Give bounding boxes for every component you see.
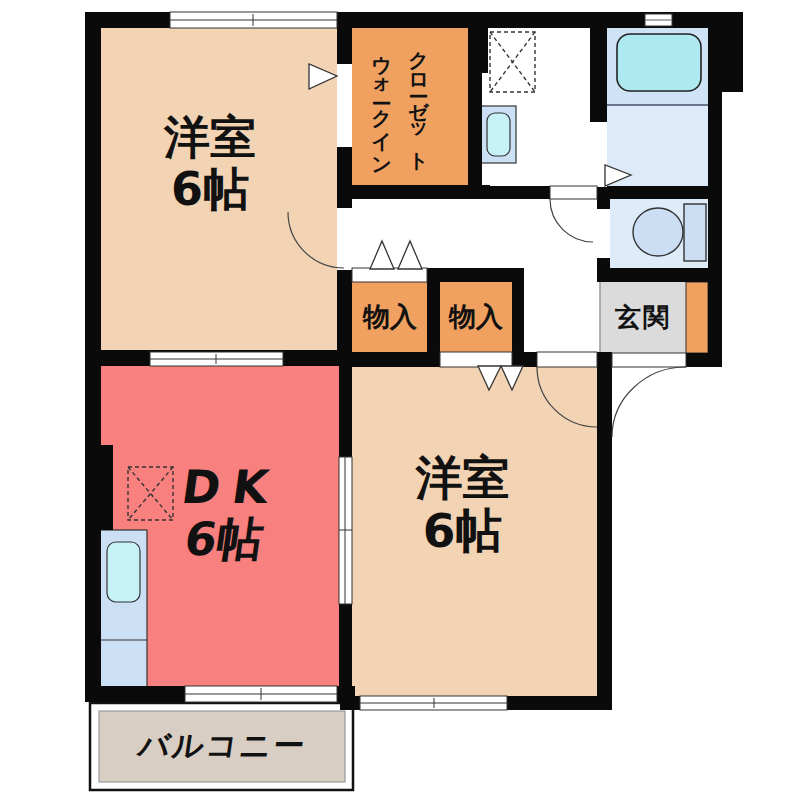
room-size: 6帖: [113, 514, 335, 566]
storage-left-door: [352, 268, 427, 282]
window-icon: [645, 14, 672, 26]
window-icon: [150, 352, 283, 366]
sliding-door-icon: [339, 457, 352, 604]
label-walkin-closet-line1: クローゼット: [406, 36, 433, 188]
bifold-door-icon: [398, 241, 422, 269]
room-size: 6帖: [355, 505, 570, 558]
toilet-door-gap: [597, 209, 610, 258]
shoe-cabinet: [686, 282, 708, 353]
label-storage-right: 物入: [437, 302, 515, 332]
wall: [98, 445, 113, 530]
entrance-door-arc: [612, 367, 686, 437]
label-bedroom-nw: 洋室 6帖: [105, 112, 315, 215]
bedroom-se-door-leaf: [537, 352, 597, 367]
entrance-door-leaf: [612, 353, 686, 367]
window-icon: [360, 696, 507, 710]
window-icon: [185, 686, 337, 702]
room-name: DK: [120, 462, 342, 514]
storage-right-door: [440, 352, 512, 367]
wall: [597, 268, 722, 282]
door-arc: [550, 199, 593, 242]
label-balcony: バルコニー: [103, 728, 343, 763]
wall: [590, 25, 607, 122]
bedroom-nw-door-gap: [337, 208, 352, 270]
label-genkan: 玄関: [600, 303, 686, 332]
bifold-door-icon: [370, 241, 394, 269]
closet-door-gap: [337, 64, 352, 147]
label-walkin-closet-line2: ウォークイン: [369, 42, 396, 194]
toilet-icon: [633, 204, 706, 261]
room-name: 洋室: [105, 112, 315, 164]
label-storage-left: 物入: [352, 302, 428, 332]
wall: [597, 352, 612, 710]
label-bedroom-se: 洋室 6帖: [355, 452, 570, 557]
floor-plan: 洋室 6帖 クローゼット ウォークイン 物入 物入 玄関 DK 6帖 洋室 6帖…: [0, 0, 800, 800]
room-size: 6帖: [105, 164, 315, 216]
wall: [722, 12, 743, 92]
room-name: 洋室: [355, 452, 570, 505]
window-icon: [170, 12, 337, 28]
washing-machine-pan-icon: [490, 32, 535, 92]
bathtub-icon: [617, 34, 701, 91]
label-dk: DK 6帖: [113, 462, 342, 565]
washroom-door-leaf: [550, 186, 597, 199]
washbasin-icon: [481, 106, 516, 163]
wall: [686, 353, 722, 367]
wall: [468, 25, 488, 73]
